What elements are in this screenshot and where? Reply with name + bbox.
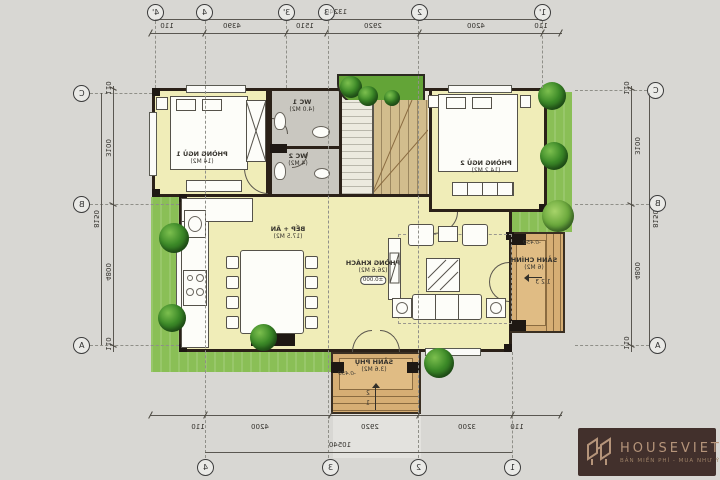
dim-text: 110	[104, 337, 112, 350]
dresser-bedroom2	[452, 182, 514, 196]
grid-line-horizontal	[90, 93, 152, 94]
window	[149, 112, 157, 176]
dim-tick	[558, 29, 563, 37]
door-tag	[269, 144, 287, 153]
grid-bubble-bottom: 3	[322, 459, 339, 476]
label-wc2: WC 2(4 M2)	[288, 152, 307, 168]
dim-text-total: 8150	[92, 210, 100, 228]
dining-chair	[305, 276, 318, 289]
dim-text: 110	[191, 423, 204, 431]
step-arrow-main-head	[524, 274, 529, 282]
porch-side-step	[333, 396, 419, 397]
tree-icon	[540, 142, 568, 170]
dim-line-left-chain	[113, 86, 114, 352]
tree-icon	[424, 348, 454, 378]
dim-text: 2920	[364, 22, 382, 30]
porch-side-step	[333, 410, 419, 411]
sofa-corner-table	[438, 226, 458, 242]
grid-bubble-left: C	[73, 85, 90, 102]
grid-bubble-top: 3'	[278, 4, 295, 21]
dim-text: 1510	[296, 22, 314, 30]
dining-chair	[226, 256, 239, 269]
planter-shrub-icon	[384, 90, 400, 106]
grid-bubble-top: 2	[411, 4, 428, 21]
grid-bubble-right: B	[649, 195, 666, 212]
dining-chair	[226, 276, 239, 289]
grid-bubble-left: A	[73, 337, 90, 354]
bed2-pillow	[472, 97, 492, 109]
armchair	[462, 224, 488, 246]
side-table-dish	[490, 302, 502, 314]
grid-bubble-left: B	[73, 196, 90, 213]
grid-bubble-bottom: 2	[410, 459, 427, 476]
nightstand	[156, 97, 168, 110]
dim-text: 4200	[251, 423, 269, 431]
label-bedroom1: PHÒNG NGỦ 1(14 M2)	[176, 150, 228, 166]
column	[152, 88, 160, 96]
stair-flight	[342, 100, 372, 194]
porch-side-step	[333, 403, 419, 404]
grid-line-horizontal	[575, 345, 649, 346]
dining-chair	[305, 316, 318, 329]
porch-side-step-numbers: 21	[366, 388, 370, 407]
label-porch-main: SẢNH CHÍNH(6 M2)	[511, 256, 557, 272]
dim-line-right-total	[649, 93, 650, 345]
stair-winder-fan	[372, 100, 428, 194]
label-bedroom2: PHÒNG NGỦ 2(14.2 M2)	[460, 159, 512, 175]
dim-text: 110	[622, 336, 630, 349]
grid-bubble-right: A	[649, 337, 666, 354]
porch-main-step	[553, 234, 554, 331]
dim-text: 110	[160, 22, 173, 30]
grid-bubble-bottom: 1	[504, 459, 521, 476]
step-arrow-side-head	[372, 383, 380, 388]
dim-text: 110	[622, 81, 630, 94]
dim-text: 2920	[361, 423, 379, 431]
watermark-tagline: BẢN MIỀN PHÍ - MUA NHƯ Ý	[620, 458, 720, 464]
nightstand	[428, 95, 439, 108]
step-arrow-main	[528, 277, 542, 278]
dim-line-bottom-total	[205, 452, 512, 453]
grid-line-horizontal	[575, 204, 649, 205]
label-wc1: WC 1(4.0 M2)	[289, 98, 314, 114]
grid-bubble-top: 4'	[147, 4, 164, 21]
dim-text-total: 10540	[329, 441, 351, 449]
dim-text: 3100	[633, 137, 641, 155]
dim-line-top-chain	[150, 33, 562, 34]
floor-plan-canvas: 110 4390 1510 2920 4200 110 13240 110 42…	[0, 0, 720, 480]
toilet-wc2	[274, 162, 286, 180]
grid-line-horizontal	[575, 90, 647, 91]
dim-line-bottom-chain	[150, 415, 562, 416]
step-arrow-side	[375, 386, 376, 410]
dim-text: 3200	[458, 423, 476, 431]
porch-main-step	[560, 234, 561, 331]
dim-text: 110	[510, 423, 523, 431]
dim-text: 110	[534, 22, 547, 30]
window	[186, 85, 246, 93]
window	[448, 85, 512, 93]
tree-icon	[158, 304, 186, 332]
level-porch-main: -0.450	[523, 240, 541, 246]
label-kitchen-dining: BẾP + ĂN(17.5 M2)	[271, 225, 306, 241]
column	[504, 344, 512, 352]
grid-line-vertical	[328, 21, 329, 458]
column	[152, 189, 160, 197]
porch-main-step-numbers: 1 2 3	[535, 279, 550, 286]
dining-chair	[226, 316, 239, 329]
grid-line-horizontal	[90, 204, 179, 205]
dim-text: 4200	[467, 22, 485, 30]
grid-bubble-top: 1'	[534, 4, 551, 21]
grid-bubble-top: 4	[196, 4, 213, 21]
dim-text: 110	[104, 81, 112, 94]
grid-line-vertical	[512, 352, 513, 458]
dining-table	[240, 250, 304, 334]
armchair	[408, 224, 434, 246]
dim-line-left-total	[101, 93, 102, 345]
bed1-pillow	[176, 99, 196, 111]
dining-chair	[305, 296, 318, 309]
level-porch-side: -0.450	[338, 371, 356, 377]
grid-line-vertical	[205, 21, 206, 458]
grid-bubble-right: C	[647, 82, 664, 99]
stove-burner	[187, 275, 193, 281]
grid-line-vertical	[155, 21, 156, 88]
grid-bubble-bottom: 4	[197, 459, 214, 476]
dim-line-right-chain	[631, 86, 632, 352]
dim-line-top-total	[155, 19, 542, 20]
coffee-table-hatch	[426, 258, 460, 292]
label-porch-side: SẢNH PHỤ(3.6 M2)	[355, 358, 393, 374]
wardrobe-x-hatch	[246, 100, 266, 162]
kitchen-sink-bowl	[188, 216, 202, 232]
watermark-panel: HOUSEVIET BẢN MIỀN PHÍ - MUA NHƯ Ý	[578, 428, 716, 476]
sofa	[412, 294, 482, 320]
dim-text: 4390	[223, 22, 241, 30]
dresser-bedroom1	[186, 180, 242, 192]
houseviet-logo-icon	[584, 435, 614, 469]
grid-line-vertical	[418, 21, 419, 458]
shrub-icon	[542, 200, 574, 232]
tree-icon	[159, 223, 189, 253]
planter-shrub-icon	[358, 86, 378, 106]
dim-tick	[558, 411, 563, 419]
dim-text: 4800	[633, 262, 641, 280]
dim-text-total: 8150	[651, 210, 659, 228]
level-badge: ±0.000	[360, 276, 386, 285]
stair-rail	[372, 100, 374, 194]
tree-icon	[250, 324, 277, 351]
grid-bubble-top: 3	[318, 4, 335, 21]
porch-main-column	[510, 320, 526, 331]
dim-text: 4800	[104, 263, 112, 281]
nightstand	[520, 95, 531, 108]
side-table-dish	[396, 302, 408, 314]
label-living: PHÒNG KHÁCH(26.6 M2) ±0.000	[346, 259, 401, 285]
dim-text: 3100	[104, 139, 112, 157]
dining-chair	[305, 256, 318, 269]
watermark-brand: HOUSEVIET	[620, 441, 720, 456]
toilet-wc1	[274, 112, 286, 130]
dining-chair	[226, 296, 239, 309]
bed2-pillow	[446, 97, 466, 109]
